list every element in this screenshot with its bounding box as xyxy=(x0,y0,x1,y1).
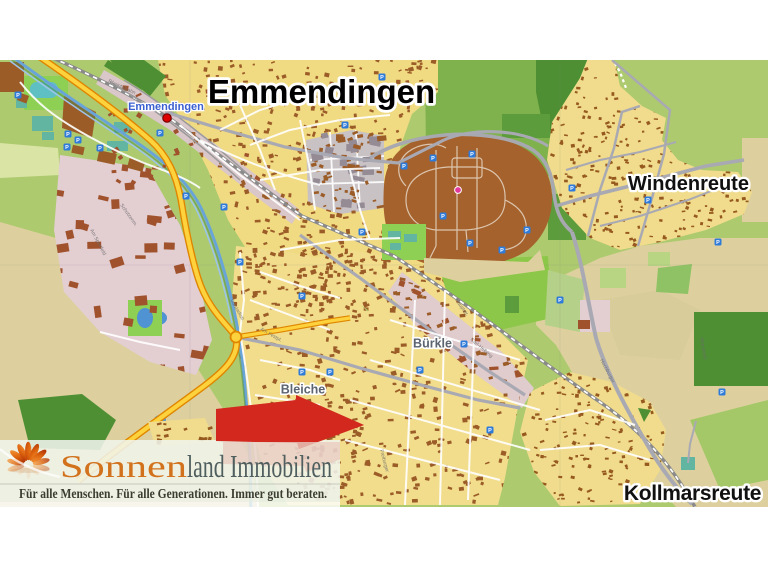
svg-text:P: P xyxy=(500,248,504,254)
svg-text:P: P xyxy=(431,156,435,162)
svg-text:P: P xyxy=(716,240,720,246)
svg-text:Bleiche: Bleiche xyxy=(281,383,326,397)
svg-text:P: P xyxy=(360,230,364,236)
svg-text:P: P xyxy=(66,132,70,138)
svg-text:P: P xyxy=(158,131,162,137)
svg-text:P: P xyxy=(418,368,422,374)
svg-text:P: P xyxy=(98,146,102,152)
svg-text:P: P xyxy=(720,390,724,396)
svg-text:P: P xyxy=(468,241,472,247)
svg-text:P: P xyxy=(238,260,242,266)
svg-text:Emmendingen: Emmendingen xyxy=(128,101,204,113)
svg-text:P: P xyxy=(300,294,304,300)
svg-text:P: P xyxy=(328,370,332,376)
svg-text:P: P xyxy=(488,428,492,434)
svg-text:P: P xyxy=(525,228,529,234)
svg-text:P: P xyxy=(570,186,574,192)
svg-text:P: P xyxy=(65,145,69,151)
svg-text:Windenreute: Windenreute xyxy=(628,173,749,195)
svg-text:P: P xyxy=(470,152,474,158)
svg-text:Emmendingen: Emmendingen xyxy=(208,73,435,110)
svg-text:P: P xyxy=(441,214,445,220)
svg-text:P: P xyxy=(16,93,20,99)
svg-text:Kollmarsreute: Kollmarsreute xyxy=(624,482,761,505)
svg-text:Bürkle: Bürkle xyxy=(413,337,452,351)
svg-text:P: P xyxy=(402,164,406,170)
svg-text:P: P xyxy=(184,194,188,200)
svg-text:P: P xyxy=(646,198,650,204)
svg-text:P: P xyxy=(462,342,466,348)
svg-text:Sonnen: Sonnen xyxy=(60,448,187,484)
svg-text:P: P xyxy=(558,298,562,304)
svg-text:Für alle Menschen. Für alle Ge: Für alle Menschen. Für alle Generationen… xyxy=(19,486,327,501)
svg-text:P: P xyxy=(76,138,80,144)
svg-text:P: P xyxy=(300,370,304,376)
svg-text:P: P xyxy=(343,123,347,129)
svg-text:land Immobilien: land Immobilien xyxy=(187,448,332,484)
svg-text:P: P xyxy=(222,205,226,211)
